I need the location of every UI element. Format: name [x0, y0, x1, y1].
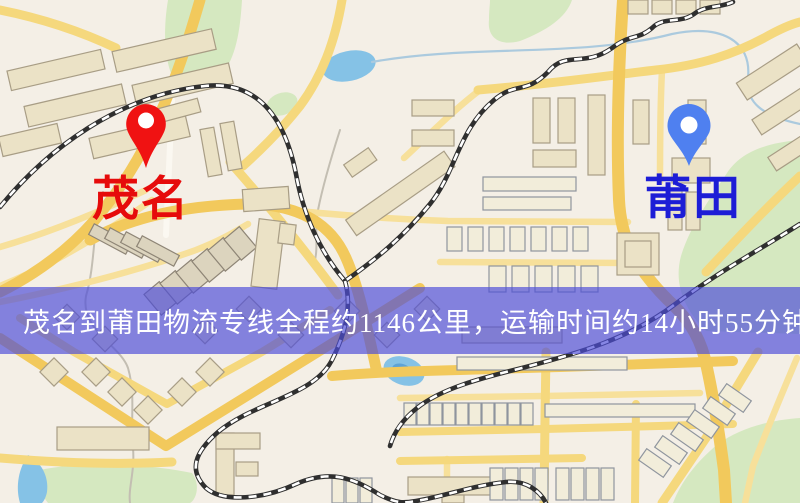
- destination-city-label: 莆田: [644, 176, 742, 223]
- destination-pin-icon[interactable]: [664, 102, 714, 167]
- origin-city-label: 茂名: [92, 177, 190, 224]
- origin-pin-icon[interactable]: [124, 98, 168, 169]
- map-background: [0, 0, 800, 503]
- route-info-text: 茂名到莆田物流专线全程约1146公里，运输时间约14小时55分钟.: [23, 301, 800, 340]
- route-info-banner: 茂名到莆田物流专线全程约1146公里，运输时间约14小时55分钟.: [0, 287, 800, 354]
- map-canvas[interactable]: 茂名 莆田 茂名到莆田物流专线全程约1146公里，运输时间约14小时55分钟.: [0, 0, 800, 503]
